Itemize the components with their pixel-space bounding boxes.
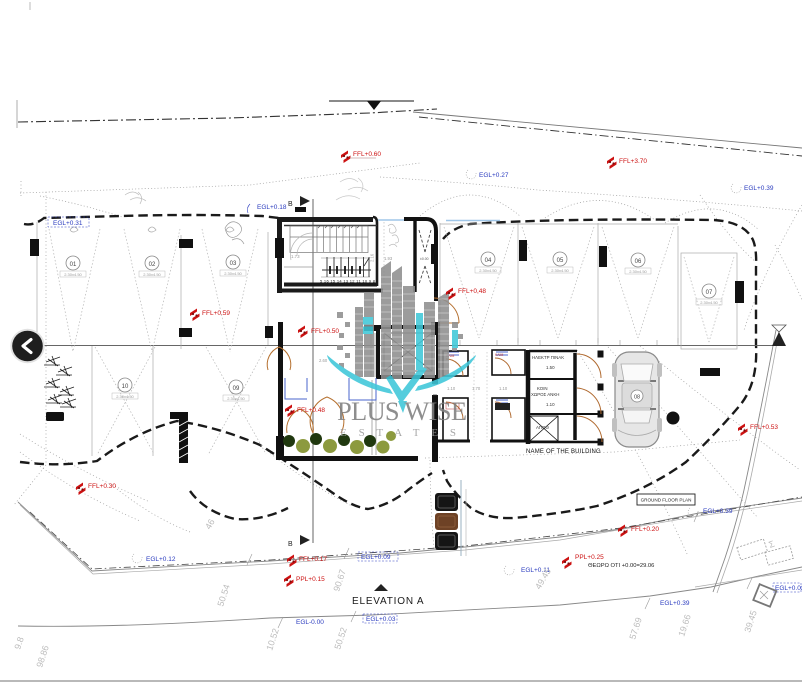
svg-text:PPL+0.15: PPL+0.15	[296, 576, 325, 583]
svg-text:01: 01	[70, 262, 77, 268]
svg-text:GROUND FLOOR PLAN: GROUND FLOOR PLAN	[641, 498, 692, 503]
svg-text:FFL+0.50: FFL+0.50	[311, 328, 339, 335]
svg-text:ELEVATION A: ELEVATION A	[352, 596, 424, 607]
svg-text:EGL+0.03: EGL+0.03	[366, 616, 396, 623]
svg-text:FFL+3.70: FFL+3.70	[619, 158, 647, 165]
svg-text:2.30x4.50: 2.30x4.50	[551, 268, 569, 273]
svg-text:FFL+0.20: FFL+0.20	[631, 526, 659, 533]
svg-text:EGL+0.02: EGL+0.02	[775, 585, 802, 592]
svg-text:03: 03	[230, 261, 237, 267]
svg-text:PPL+0.25: PPL+0.25	[575, 554, 604, 561]
svg-text:PLUS WISE: PLUS WISE	[337, 396, 467, 426]
svg-text:2.30x4.50: 2.30x4.50	[143, 272, 161, 277]
svg-text:FFL+0.17: FFL+0.17	[299, 556, 327, 563]
svg-text:1.73: 1.73	[291, 254, 300, 259]
svg-text:EGL+0.39: EGL+0.39	[703, 508, 733, 515]
svg-text:02: 02	[149, 262, 156, 268]
svg-text:2.30x4.50: 2.30x4.50	[116, 394, 134, 399]
svg-text:ΧΩΡΟΣ ΑΝΚΗ: ΧΩΡΟΣ ΑΝΚΗ	[531, 392, 559, 397]
svg-text:ΘΕΩΡΩ ΟΤΙ +0.00=29.06: ΘΕΩΡΩ ΟΤΙ +0.00=29.06	[588, 563, 654, 569]
svg-text:1.10: 1.10	[447, 386, 456, 391]
svg-text:2.30x4.50: 2.30x4.50	[64, 272, 82, 277]
svg-text:2.30x4.50: 2.30x4.50	[479, 268, 497, 273]
svg-text:FFL+0,48: FFL+0,48	[458, 288, 486, 295]
svg-text:FFL+0.48: FFL+0.48	[297, 407, 325, 414]
svg-text:±0.00: ±0.00	[420, 257, 429, 261]
svg-text:10: 10	[122, 384, 129, 390]
svg-text:ΚΟΙΝ: ΚΟΙΝ	[537, 386, 548, 391]
svg-text:09: 09	[233, 386, 240, 392]
svg-text:2.30x4.50: 2.30x4.50	[224, 271, 242, 276]
svg-text:ESTATES: ESTATES	[340, 427, 466, 439]
svg-text:B: B	[288, 541, 293, 548]
svg-text:EGL+0.12: EGL+0.12	[146, 556, 176, 563]
svg-text:1.93: 1.93	[384, 256, 393, 261]
svg-text:FFL+0.30: FFL+0.30	[88, 483, 116, 490]
svg-text:EGL+0.09: EGL+0.09	[361, 554, 391, 561]
svg-text:08: 08	[634, 395, 640, 401]
svg-text:ΗΛΕΚΤΡ ΠΙΝΑΚ: ΗΛΕΚΤΡ ΠΙΝΑΚ	[532, 355, 564, 360]
svg-text:EGL+0.31: EGL+0.31	[53, 220, 83, 227]
svg-text:NAME OF THE BUILDING: NAME OF THE BUILDING	[526, 449, 601, 455]
svg-text:2.30x4.50: 2.30x4.50	[227, 396, 245, 401]
svg-text:1.10: 1.10	[499, 386, 508, 391]
svg-text:EGL-0.00: EGL-0.00	[296, 619, 324, 626]
svg-text:FFL+0.60: FFL+0.60	[353, 151, 381, 158]
svg-text:2.30x4.50: 2.30x4.50	[700, 300, 718, 305]
svg-text:EGL+0.27: EGL+0.27	[479, 172, 509, 179]
svg-text:FFL+0.59: FFL+0.59	[202, 310, 230, 317]
svg-text:1.10: 1.10	[546, 402, 555, 407]
svg-text:1.50: 1.50	[546, 365, 555, 370]
svg-text:04: 04	[485, 258, 492, 264]
svg-text:ΑΠΟΘ: ΑΠΟΘ	[536, 425, 550, 430]
svg-text:EGL+0.39: EGL+0.39	[660, 600, 690, 607]
svg-text:2.60: 2.60	[319, 358, 328, 363]
svg-text:06: 06	[635, 259, 642, 265]
svg-text:2.30x4.50: 2.30x4.50	[629, 269, 647, 274]
svg-text:FFL+0.53: FFL+0.53	[750, 424, 778, 431]
svg-text:2.16: 2.16	[370, 253, 375, 262]
svg-text:EGL+0.39: EGL+0.39	[744, 185, 774, 192]
svg-text:1.70: 1.70	[472, 386, 481, 391]
svg-text:07: 07	[706, 290, 713, 296]
svg-text:5 16 15 14 13 12 11 10 9 8: 5 16 15 14 13 12 11 10 9 8	[320, 279, 376, 284]
svg-text:B: B	[288, 201, 293, 208]
svg-text:05: 05	[557, 258, 564, 264]
svg-text:EGL+0.18: EGL+0.18	[257, 204, 287, 211]
svg-text:ΚΛΙΜ: ΚΛΙΜ	[495, 353, 503, 357]
